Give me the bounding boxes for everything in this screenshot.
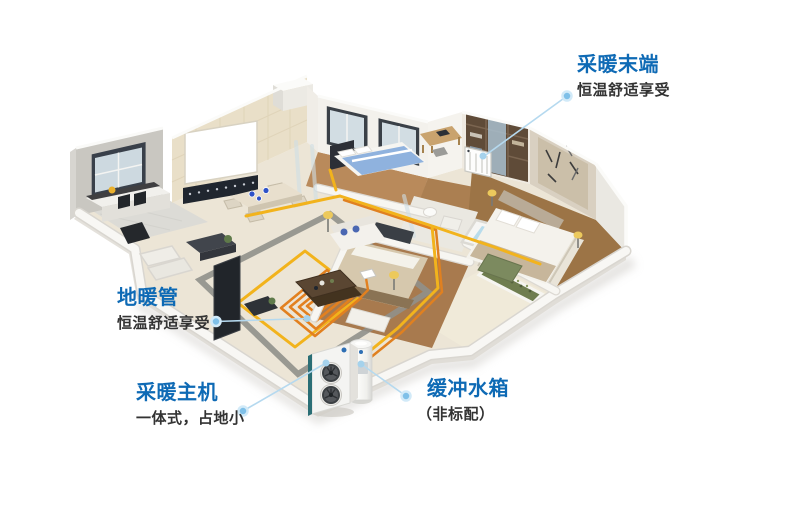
- callout-subtitle: 恒温舒适享受: [117, 315, 210, 332]
- toilet: [424, 208, 437, 217]
- coil-fin-strip: [308, 354, 312, 416]
- callout-subtitle: 一体式，占地小: [136, 410, 245, 427]
- callout-title: 采暖主机: [136, 381, 245, 404]
- callout-heating-host: 采暖主机 一体式，占地小: [136, 381, 245, 427]
- kettle: [109, 187, 116, 194]
- dot-floor-pipe: [212, 317, 221, 326]
- wall-radiator: [465, 147, 491, 177]
- callout-title: 地暖管: [117, 286, 210, 309]
- projection-screen: [185, 121, 257, 184]
- heating-system-diagram: 采暖末端 恒温舒适享受 地暖管 恒温舒适享受 采暖主机 一体式，占地小 缓冲水箱…: [0, 0, 800, 516]
- tank-logo: [359, 350, 363, 354]
- plant: [224, 235, 232, 243]
- callout-subtitle: （非标配）: [417, 406, 509, 423]
- callout-floor-heating-pipe: 地暖管 恒温舒适享受: [117, 286, 210, 332]
- callout-title: 采暖末端: [577, 53, 670, 76]
- plant: [269, 298, 276, 305]
- callout-subtitle: 恒温舒适享受: [577, 82, 670, 99]
- dot-heating-terminal: [563, 92, 572, 101]
- tv-panel: [214, 256, 240, 340]
- wall-jog: [307, 86, 318, 152]
- fan-1: [321, 363, 342, 384]
- callout-buffer-tank: 缓冲水箱 （非标配）: [427, 377, 509, 423]
- pump-logo: [342, 348, 347, 353]
- apartment-illustration: [0, 0, 800, 516]
- callout-title: 缓冲水箱: [427, 377, 509, 400]
- fan-2: [321, 385, 342, 406]
- dot-buffer-tank: [402, 392, 411, 401]
- callout-heating-terminal: 采暖末端 恒温舒适享受: [577, 53, 670, 99]
